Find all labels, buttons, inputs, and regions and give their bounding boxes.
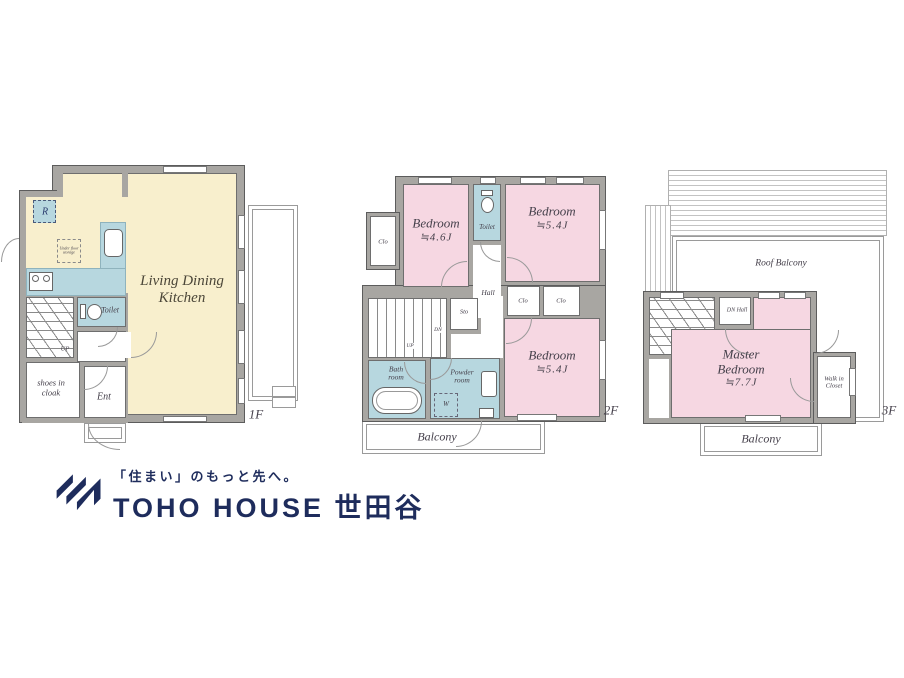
window: [238, 215, 245, 249]
refrigerator-label: R: [42, 206, 48, 217]
underfloor-storage-label: Under floorstorage: [60, 247, 79, 256]
window: [599, 340, 606, 380]
balcony-2f-label: Balcony: [414, 430, 459, 443]
bathroom-label: Bathroom: [388, 366, 404, 383]
floor-label-1f: 1F: [249, 408, 263, 423]
toilet-bowl-icon: [87, 304, 102, 320]
window: [163, 166, 207, 173]
master-bedroom-label: MasterBedroom ≒7.7J: [717, 347, 764, 388]
washer-label: W: [443, 401, 449, 409]
window: [238, 378, 245, 404]
floor-plan-canvas: R Under floorstorage Living DiningKitc: [0, 0, 904, 678]
powder-label: Powderroom: [450, 369, 473, 386]
hall-label: Hall: [481, 289, 494, 297]
roof-hatch-left: [645, 205, 671, 293]
toilet-1f-label: Toilet: [101, 307, 119, 316]
closet-left-label: Clo: [378, 238, 387, 245]
bedroom3-label: Bedroom≒5.4J: [528, 349, 575, 376]
ldk-label: Living DiningKitchen: [140, 273, 224, 307]
washbasin-icon: [481, 371, 497, 397]
window: [660, 292, 684, 299]
closet-mid-label: Clo: [518, 297, 527, 304]
window: [520, 177, 546, 184]
roof-hatch-top: [668, 170, 887, 236]
toho-logo-mark: [55, 462, 107, 516]
toilet-bowl-icon-2f: [481, 197, 494, 213]
bathtub-icon: [372, 387, 422, 414]
toilet-tank-icon-2f: [481, 190, 493, 196]
hall-mid2: [481, 296, 503, 336]
window: [849, 368, 856, 396]
window: [238, 270, 245, 304]
window: [758, 292, 780, 299]
dn-hall-label: DN Hall: [727, 308, 748, 315]
hall-mid: [451, 334, 503, 358]
window: [517, 414, 557, 421]
room-master-upper: [753, 297, 811, 333]
door-arc-kitchen-service: [1, 238, 19, 262]
window: [599, 210, 606, 250]
sto-label: Sto: [460, 308, 468, 315]
landing-strip: [649, 359, 669, 418]
roof-balcony-label: Roof Balcony: [755, 259, 806, 270]
dn-label-2f: DN: [433, 327, 443, 333]
balcony-3f-label: Balcony: [738, 432, 783, 445]
terrace-step: [272, 397, 296, 408]
terrace-outline: [248, 205, 298, 401]
logo-tagline: 「住まい」のもっと先へ。: [113, 466, 299, 485]
walk-in-closet-label: Walk inCloset: [824, 376, 843, 391]
window: [238, 330, 245, 364]
sink-icon: [104, 229, 123, 257]
window: [784, 292, 806, 299]
stove-icon: [29, 272, 53, 291]
floor-label-2f: 2F: [604, 404, 618, 419]
closet-right-label: Clo: [556, 297, 565, 304]
toilet-tank-icon: [80, 304, 86, 319]
window: [418, 177, 452, 184]
window: [163, 416, 207, 422]
toilet-2f-label: Toilet: [479, 224, 495, 232]
window: [480, 177, 496, 184]
wall-stub: [57, 170, 63, 197]
floor-label-3f: 3F: [882, 404, 896, 419]
door-arc-entrance: [88, 424, 120, 450]
up-label-1f: UP: [61, 345, 70, 352]
bedroom2-label: Bedroom≒5.4J: [528, 205, 575, 232]
up-label-2f: UP: [405, 343, 414, 349]
logo-brand: TOHO HOUSE 世田谷: [113, 486, 425, 525]
wall-stub: [122, 170, 128, 197]
shoes-in-cloak-label: shoes incloak: [37, 378, 65, 397]
window: [745, 415, 781, 422]
ent-label: Ent: [97, 391, 111, 402]
window: [556, 177, 584, 184]
lavatory-box: [479, 408, 494, 418]
bedroom1-label: Bedroom≒4.6J: [412, 217, 459, 244]
terrace-step: [272, 386, 296, 397]
